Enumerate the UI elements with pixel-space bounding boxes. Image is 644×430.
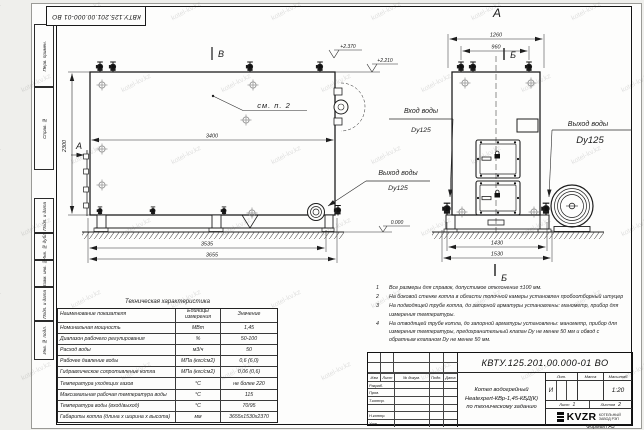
note-number: 4 [376, 320, 389, 345]
tech-cell-value: 3655х1530х2370 [221, 412, 277, 422]
alignment-target-icon [460, 78, 471, 89]
inspection-window [517, 119, 538, 132]
note-text: На подводящей трубе котла, до запорной а… [389, 302, 626, 318]
sheet-value: 1 [573, 402, 576, 408]
tech-row: Максимальная рабочая температура воды°С1… [58, 389, 277, 400]
tech-cell-value: 50 [221, 345, 277, 355]
valve-icon [316, 62, 322, 72]
note-number: 3 [376, 302, 389, 318]
date-cell [444, 412, 457, 419]
revision-cell [444, 353, 458, 363]
revision-cell [394, 353, 430, 363]
tech-cell-unit: МВт [176, 323, 221, 333]
sign-cell [430, 389, 444, 396]
tech-row: Температура уходящих газов°Сне более 220 [58, 377, 277, 388]
title-block: Изм Лист № докум. Подп. Дата Разраб. Про… [367, 352, 633, 426]
tech-cell-value: 50-100 [221, 334, 277, 344]
valve-icon [443, 203, 451, 215]
rev-header: Дата [444, 374, 457, 381]
ground-line [82, 232, 344, 239]
view-marker-a: А [75, 141, 82, 151]
signature-row: Н.контр. [368, 411, 457, 419]
tech-table-title: Техническая характеристика [57, 299, 278, 305]
tech-row: Температура воды (вход/выход)°С70/95 [58, 400, 277, 411]
sheets-value: 2 [618, 402, 621, 408]
product-line: Heatexpert-КВр-1,45-КБД(К) [465, 395, 538, 404]
revision-cell [444, 363, 458, 373]
alignment-target-icon [97, 80, 108, 91]
furnace-door [476, 140, 520, 178]
logo-mark-icon [557, 412, 564, 421]
dim-front-top2: 960 [491, 45, 501, 51]
logo-text: KVZR [567, 411, 597, 423]
tech-cell-name: Максимальная рабочая температура воды [58, 390, 176, 400]
side-view-dimensions: 3400 2300 3535 3655 +2.370 +2. [62, 44, 430, 263]
date-cell [444, 382, 457, 389]
tech-cell-unit: °С [176, 401, 221, 411]
logo-subtext: КОТЕЛЬНЫЙ ЗАВОД РЭП [599, 413, 621, 422]
elevation-value: 0.000 [391, 220, 404, 226]
scale-header: Масштаб [604, 373, 632, 381]
revision-cell [381, 353, 394, 363]
tech-cell-name: Температура воды (вход/выход) [58, 401, 176, 411]
sheets-label: Листов [601, 402, 616, 407]
tech-row: Габариты котла (длина х ширина х высота)… [58, 411, 277, 422]
revision-cell [381, 363, 394, 373]
note-item: 1Все размеры для справок, допустимое отк… [376, 284, 626, 292]
lit-value: И [546, 381, 557, 400]
valve-icon [469, 62, 475, 72]
tech-cell-unit: м3/ч [176, 345, 221, 355]
scale-value: 1:20 [604, 381, 632, 401]
note-text: На отводящей трубе котла, до запорной ар… [389, 320, 626, 345]
tech-cell-value: 0,06 (0,6) [221, 367, 277, 377]
date-cell [444, 420, 457, 427]
role-label: Пров. [368, 389, 395, 396]
product-line: Котел водогрейный [474, 386, 528, 395]
revision-cell [368, 363, 381, 373]
mass-header: Масса [578, 373, 604, 381]
note-item: 4На отводящей трубе котла, до запорной а… [376, 320, 626, 345]
outlet-water-label: Выход воды [568, 119, 609, 128]
alignment-target-icon [248, 80, 259, 91]
tech-row: Гидравлическое сопротивление котлаМПа (к… [58, 366, 277, 377]
revision-cell [430, 353, 444, 363]
tech-row: Номинальная мощностьМВт1,45 [58, 322, 277, 333]
valve-icon [457, 62, 463, 72]
inlet-dn-label: Dy125 [411, 127, 431, 134]
alignment-target-icon [457, 207, 468, 218]
name-cell [395, 412, 430, 419]
dim-front-top1: 1260 [490, 33, 503, 39]
alignment-target-icon [529, 207, 540, 218]
signature-row: Разраб. [368, 381, 457, 389]
lit-header: Лит. [546, 373, 578, 381]
valve-icon [221, 207, 226, 215]
sensor-strip [84, 150, 89, 216]
role-label: Н.контр. [368, 412, 395, 419]
revision-cell [430, 363, 444, 373]
tech-row: Диапазон рабочего регулирования%50-100 [58, 333, 277, 344]
mass-value [578, 381, 604, 401]
tech-cell-unit: мм [176, 412, 221, 422]
sheet-label: Лист [559, 402, 569, 407]
tech-cell-value: 115 [221, 390, 277, 400]
name-cell [395, 420, 430, 427]
date-cell [444, 389, 457, 396]
note-text: Все размеры для справок, допустимое откл… [389, 284, 626, 292]
inlet-water-label: Вход воды [404, 107, 439, 115]
outlet-dn-label: Dy125 [576, 135, 604, 146]
alignment-target-icon [241, 115, 252, 126]
sign-cell [430, 397, 444, 404]
role-label [368, 405, 395, 412]
role-label: Т.контр. [368, 397, 395, 404]
tech-table: Наименование показателя Единицы измерени… [57, 308, 278, 424]
date-cell [444, 397, 457, 404]
tech-cell-value: 1,45 [221, 323, 277, 333]
tech-cell-name: Расход воды [58, 345, 176, 355]
tech-cell-value: не более 220 [221, 378, 277, 388]
tech-cell-unit: МПа (кгс/см2) [176, 356, 221, 366]
section-marker-b: Б [501, 273, 507, 283]
note-number: 2 [376, 293, 389, 301]
notes-list: 1Все размеры для справок, допустимое отк… [376, 284, 626, 345]
view-marker-v: В [218, 49, 224, 59]
rev-header: Лист [381, 374, 394, 381]
format-label: Формат А3 [570, 424, 631, 430]
drawing-sheet: kotel-kv.kzkotel-kv.kzkotel-kv.kzkotel-k… [0, 0, 644, 430]
document-number: КВТУ.125.201.00.000-01 ВО [458, 353, 632, 373]
revision-cell [368, 353, 381, 363]
ground-line [432, 232, 604, 239]
tech-header-name: Наименование показателя [58, 309, 176, 322]
tech-cell-name: Гидравлическое сопротивление котла [58, 367, 176, 377]
rev-header: № докум. [395, 374, 430, 381]
note-number: 1 [376, 284, 389, 292]
product-line: по техническому заданию [466, 403, 536, 412]
name-cell [395, 389, 430, 396]
name-cell [395, 382, 430, 389]
alignment-target-icon [97, 180, 108, 191]
support-skid [94, 215, 334, 232]
blower-fan [551, 185, 593, 232]
outlet-dn-label: Dy125 [388, 185, 408, 192]
sign-cell [430, 412, 444, 419]
sheet-cell: Лист1 [546, 401, 590, 408]
sheets-cell: Листов2 [590, 401, 633, 408]
sign-cell [430, 382, 444, 389]
tech-row: Рабочее давление водыМПа (кгс/см2)0,6 (6… [58, 355, 277, 366]
alignment-target-icon [247, 208, 258, 219]
signature-header-row: Изм Лист № докум. Подп. Дата [368, 373, 457, 381]
name-cell [395, 405, 430, 412]
alignment-target-icon [526, 78, 537, 89]
outlet-water-label: Выход воды [378, 169, 418, 177]
valve-icon [246, 62, 252, 72]
tech-header-value: Значение [221, 309, 277, 322]
product-name: Котел водогрейный Heatexpert-КВр-1,45-КБ… [458, 373, 546, 425]
dim-main-length: 3400 [206, 134, 219, 140]
tech-cell-name: Рабочее давление воды [58, 356, 176, 366]
elevation-mark: +2.210 [335, 58, 398, 72]
tech-cell-value: 70/95 [221, 401, 277, 411]
revision-cell [394, 363, 430, 373]
logo-subline: ЗАВОД РЭП [599, 417, 621, 421]
tech-cell-unit: МПа (кгс/см2) [176, 367, 221, 377]
tech-cell-name: Номинальная мощность [58, 323, 176, 333]
boiler-side-view [82, 62, 365, 239]
dim-main-base1: 3535 [201, 242, 214, 248]
valve-icon [150, 207, 155, 215]
rev-header: Подп. [430, 374, 444, 381]
dim-main-height: 2300 [62, 139, 68, 153]
dim-front-base1: 1430 [491, 241, 504, 247]
lit-cell [567, 381, 577, 400]
tech-header-row: Наименование показателя Единицы измерени… [58, 309, 277, 322]
signature-row: Т.контр. [368, 396, 457, 404]
role-label: Разраб. [368, 382, 395, 389]
see-note-callout: см. п. 2 [257, 101, 291, 110]
front-view-title: А [492, 6, 501, 20]
signature-row [368, 404, 457, 412]
note-item: 3На подводящей трубе котла, до запорной … [376, 302, 626, 318]
outlet-flange [308, 204, 325, 221]
tech-cell-unit: °С [176, 378, 221, 388]
tech-cell-name: Температура уходящих газов [58, 378, 176, 388]
valve-icon [97, 207, 102, 215]
furnace-door [476, 181, 520, 215]
revision-grid [368, 353, 458, 373]
lit-cell [557, 381, 568, 400]
front-base [444, 215, 551, 232]
name-cell [395, 397, 430, 404]
sign-cell [430, 420, 444, 427]
tech-cell-value: 0,6 (6,0) [221, 356, 277, 366]
note-text: На боковой стенке котла в области топочн… [389, 293, 626, 301]
valve-icon [109, 62, 115, 72]
signature-grid: Изм Лист № докум. Подп. Дата Разраб. Про… [368, 373, 458, 427]
dim-front-base2: 1530 [491, 252, 504, 258]
section-marker-b: Б [510, 50, 516, 60]
elevation-value: +2.210 [377, 58, 393, 64]
role-label: Утв. [368, 420, 395, 427]
front-view-dimensions: 1260 960 Б Б 1430 1530 Вход воды Dy125 [389, 33, 632, 284]
valve-icon [525, 62, 531, 72]
tech-row: Расход водым3/ч50 [58, 344, 277, 355]
valve-icon [96, 62, 102, 72]
date-cell [444, 405, 457, 412]
dim-main-base2: 3655 [206, 253, 219, 259]
sign-cell [430, 405, 444, 412]
sheet-row: Лист1 Листов2 [546, 401, 632, 409]
note-item: 2На боковой стенке котла в области топоч… [376, 293, 626, 301]
tech-cell-unit: °С [176, 390, 221, 400]
elevation-mark: 0.000 [344, 220, 410, 232]
side-fitting [334, 83, 365, 131]
rev-header: Изм [368, 374, 381, 381]
tech-cell-name: Диапазон рабочего регулирования [58, 334, 176, 344]
alignment-target-icon [97, 144, 108, 155]
boiler-body-side [90, 72, 335, 215]
kvzr-logo: KVZR КОТЕЛЬНЫЙ ЗАВОД РЭП [546, 409, 632, 425]
tech-cell-name: Габариты котла (длина х ширина х высота) [58, 412, 176, 422]
signature-row: Утв. [368, 419, 457, 427]
tech-cell-unit: % [176, 334, 221, 344]
technical-characteristics: Техническая характеристика Наименование … [57, 299, 278, 423]
signature-row: Пров. [368, 388, 457, 396]
elevation-mark: +2.370 [329, 44, 362, 58]
valve-icon [542, 203, 550, 215]
elevation-value: +2.370 [340, 44, 356, 50]
tech-header-unit: Единицы измерения [176, 309, 221, 322]
lit-cells: И [546, 381, 578, 401]
